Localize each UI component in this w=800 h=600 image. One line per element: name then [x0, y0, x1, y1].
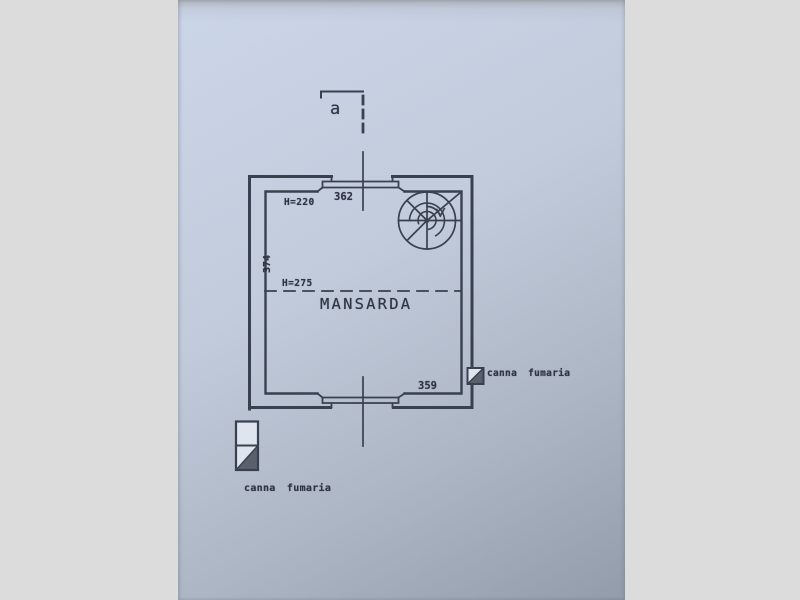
- section-cut-line: [321, 92, 363, 447]
- photographed-floorplan: a 362 H=220 374 H=275 MANSARDA 359 canna…: [0, 0, 800, 600]
- legend-label: canna fumaria: [244, 484, 331, 494]
- height-label-low: H=220: [284, 198, 315, 208]
- spiral-staircase-icon: [399, 192, 462, 249]
- dimension-top-width: 362: [334, 192, 353, 203]
- section-marker-label: a: [330, 101, 340, 118]
- room-label: MANSARDA: [320, 297, 412, 313]
- height-label-high: H=275: [282, 279, 313, 289]
- flue-label: canna fumaria: [487, 369, 570, 379]
- inner-wall: [266, 192, 462, 394]
- dimension-left-height: 374: [263, 255, 273, 273]
- top-window: [318, 177, 405, 192]
- legend-flue-icon: [236, 422, 258, 471]
- bottom-window: [318, 394, 405, 408]
- dimension-bottom-width: 359: [418, 381, 437, 392]
- canna-fumaria-flue-icon: [468, 368, 484, 384]
